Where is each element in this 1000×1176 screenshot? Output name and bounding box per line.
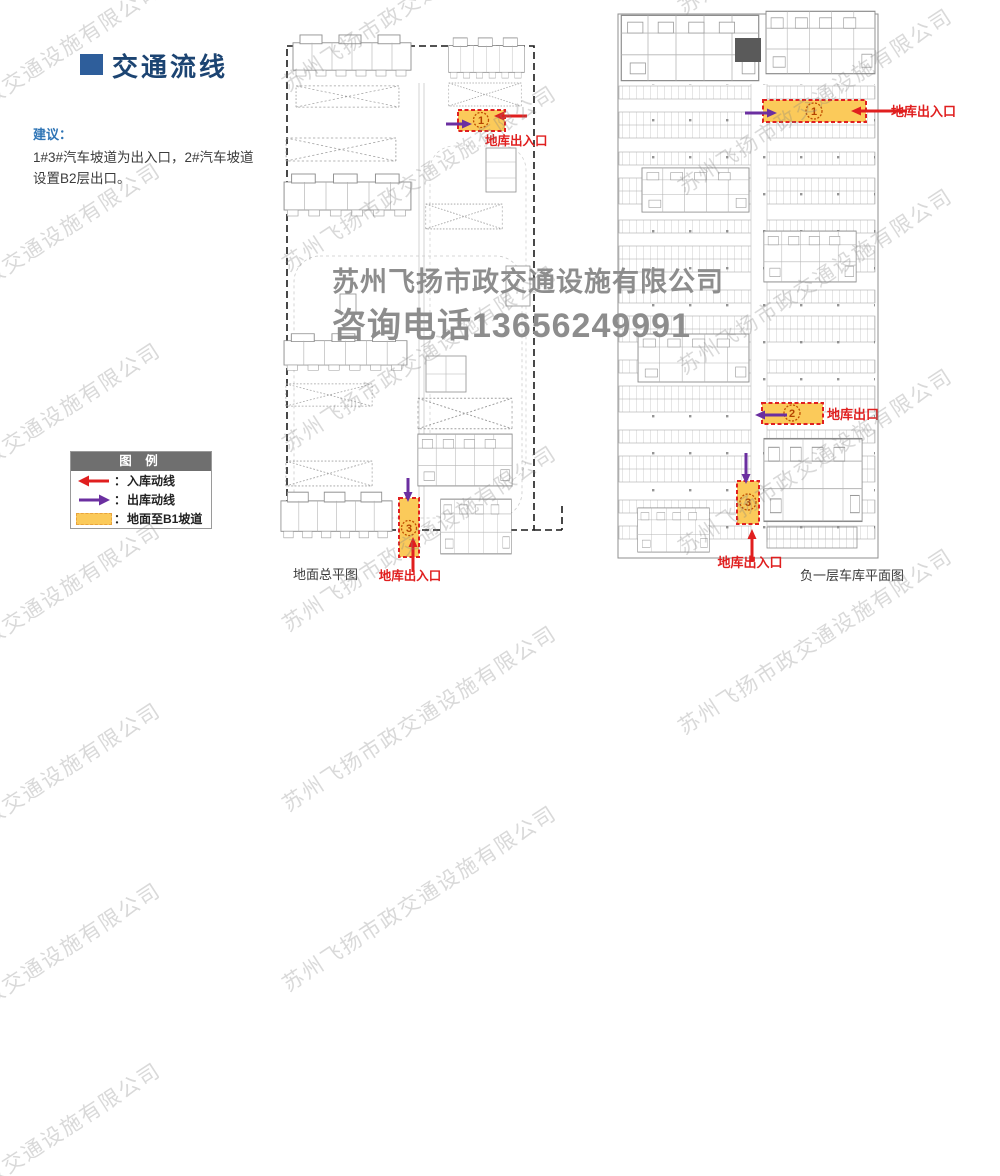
basement-plan-caption: 负一层车库平面图: [800, 568, 904, 583]
legend-item-ramp: ： 地面至B1坡道: [71, 509, 211, 528]
inflow-arrow-icon: [75, 474, 113, 488]
suggestion-heading: 建议：: [33, 124, 72, 143]
legend-item-outflow: ： 出库动线: [71, 490, 211, 509]
legend: 图 例 ： 入库动线 ： 出库动线 ： 地面至B1坡道: [70, 451, 212, 529]
ramp-number: 3: [745, 497, 751, 509]
slide-traffic-flow: { "page": {"width": 1000, "height": 588,…: [0, 0, 1000, 588]
basement-ramp-2: 2 地库出口: [755, 403, 879, 424]
ramp-entrance-label: 地库出入口: [485, 133, 548, 148]
page-title: 交通流线: [112, 47, 228, 84]
ramp-exit-label: 地库出口: [827, 407, 879, 422]
stair-core-block: [735, 38, 761, 62]
ground-plan-caption: 地面总平图: [293, 567, 358, 582]
ramp-swatch-icon: [75, 513, 113, 525]
legend-label-outflow: 出库动线: [127, 491, 175, 508]
ramp-number: 3: [406, 523, 412, 535]
basement-garage-plan: 1 地库出入口 2 地库出口 3 地库出入口 负一层车库平面图: [615, 8, 1000, 588]
legend-colon: ：: [114, 472, 126, 489]
legend-colon: ：: [114, 491, 126, 508]
ramp-number: 1: [811, 106, 817, 118]
legend-colon: ：: [114, 510, 126, 527]
ground-site-plan: 1 地库出入口 3 地库出入口 地面总平图: [278, 28, 570, 588]
ramp-entrance-label: 地库出入口: [891, 104, 956, 119]
suggestion-line-1: 1#3#汽车坡道为出入口，2#汽车坡道: [33, 146, 254, 166]
title-bullet-square: [80, 54, 103, 75]
ramp-entrance-label: 地库出入口: [717, 555, 782, 570]
basement-ramp-1: 1 地库出入口: [745, 100, 956, 122]
outflow-arrow-icon: [75, 493, 113, 507]
legend-title: 图 例: [71, 452, 211, 471]
legend-item-inflow: ： 入库动线: [71, 471, 211, 490]
ground-ramp-1: 1 地库出入口: [446, 110, 548, 148]
legend-label-inflow: 入库动线: [127, 472, 175, 489]
legend-label-ramp: 地面至B1坡道: [127, 510, 202, 527]
ramp-number: 1: [478, 115, 484, 127]
ramp-number: 2: [789, 408, 795, 420]
ramp-entrance-label: 地库出入口: [379, 568, 442, 583]
suggestion-line-2: 设置B2层出口。: [33, 167, 131, 187]
